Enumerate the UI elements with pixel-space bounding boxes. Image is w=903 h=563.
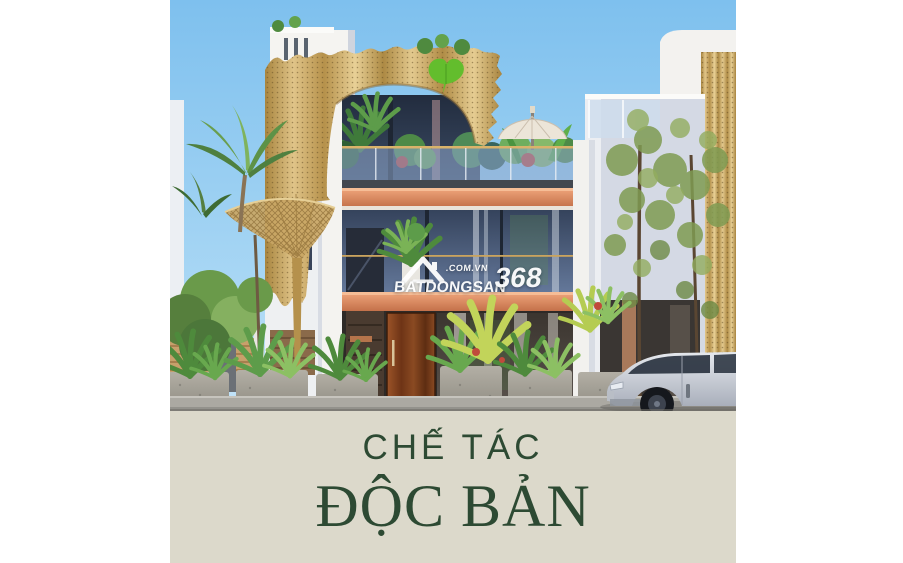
poster-canvas: .COM.VN BATDONGSAN 368 CHẾ TÁC ĐỘC BẢN	[0, 0, 903, 563]
artwork: .COM.VN BATDONGSAN 368 CHẾ TÁC ĐỘC BẢN	[170, 0, 736, 563]
villa-render-photo: .COM.VN BATDONGSAN 368	[170, 0, 736, 411]
caption-line-1: CHẾ TÁC	[170, 411, 736, 465]
watermark-domain-suffix: .COM.VN	[445, 263, 488, 273]
caption-band: CHẾ TÁC ĐỘC BẢN	[170, 411, 736, 563]
watermark-number: 368	[492, 262, 544, 294]
scene-illustration	[170, 0, 736, 411]
watermark-brand: BATDONGSAN	[393, 279, 507, 297]
terrace-glass-railing	[337, 148, 580, 182]
caption-line-2: ĐỘC BẢN	[170, 476, 736, 536]
watermark: .COM.VN BATDONGSAN 368	[393, 253, 543, 307]
